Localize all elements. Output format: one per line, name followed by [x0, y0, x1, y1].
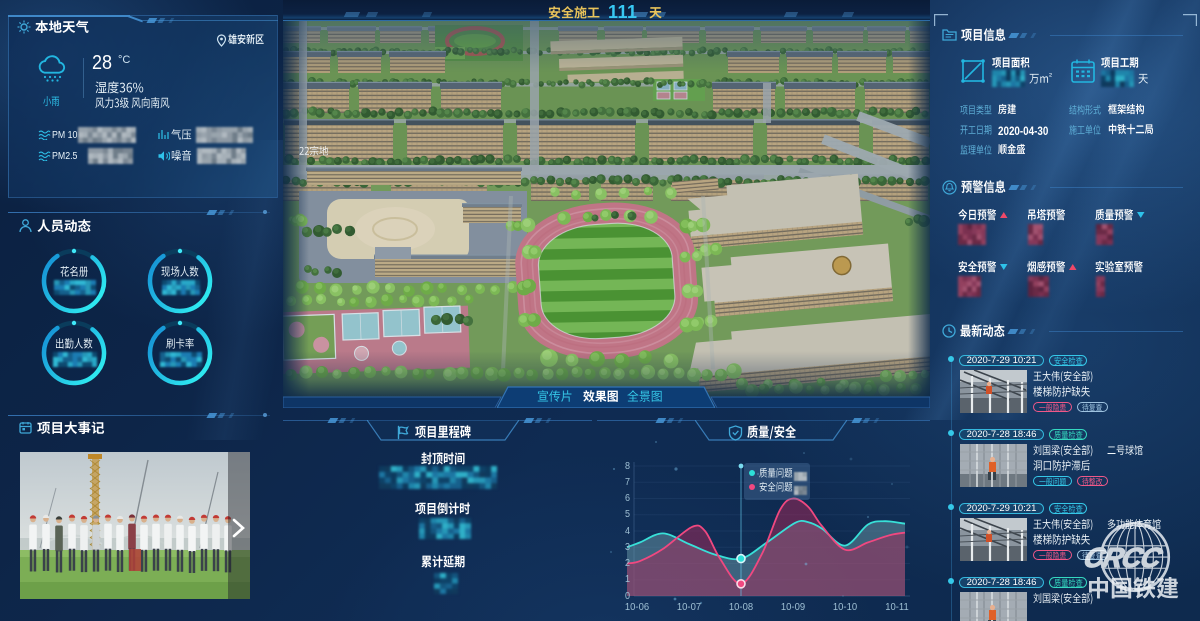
- svg-text:CRCC: CRCC: [1081, 543, 1166, 574]
